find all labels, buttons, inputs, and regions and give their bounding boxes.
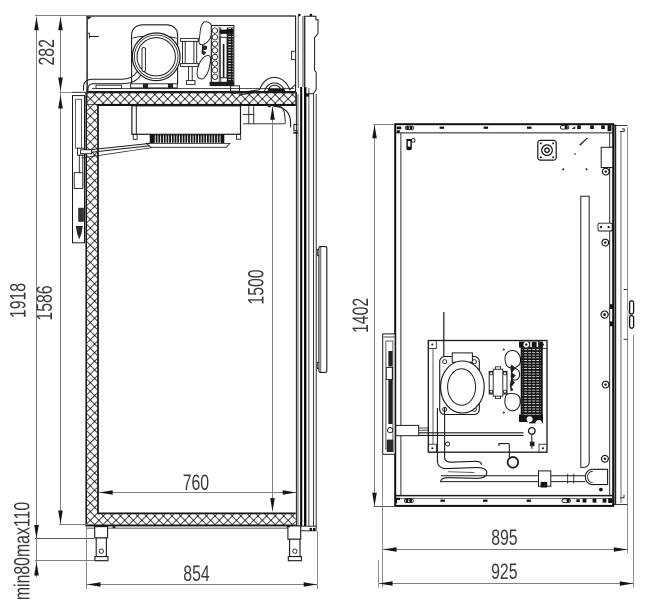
svg-text:925: 925: [491, 561, 517, 585]
svg-text:895: 895: [491, 527, 517, 551]
svg-text:1586: 1586: [34, 285, 58, 320]
svg-text:1918: 1918: [7, 283, 31, 318]
svg-text:282: 282: [36, 39, 60, 65]
svg-text:760: 760: [183, 471, 209, 495]
svg-text:1500: 1500: [245, 269, 269, 304]
svg-text:1402: 1402: [350, 298, 374, 333]
svg-text:854: 854: [183, 563, 210, 587]
svg-text:min80max110: min80max110: [11, 502, 35, 600]
